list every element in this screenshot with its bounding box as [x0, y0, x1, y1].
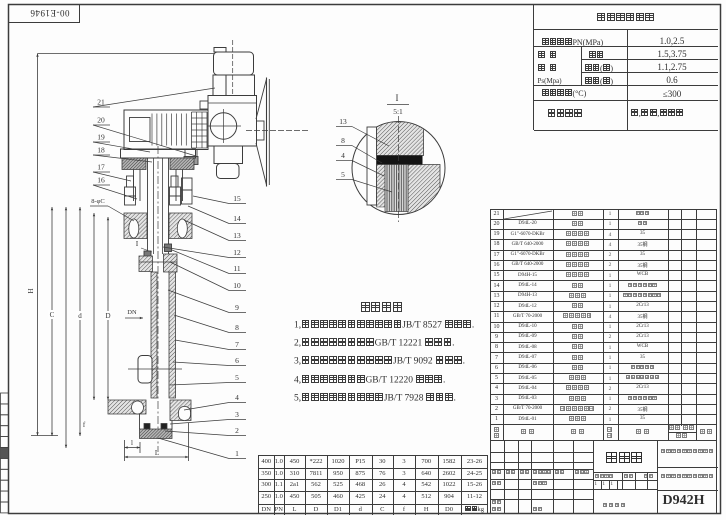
svg-text:18: 18 — [97, 146, 105, 155]
svg-text:10: 10 — [233, 281, 241, 290]
svg-text:5: 5 — [235, 373, 239, 382]
svg-text:8-φC: 8-φC — [91, 198, 105, 205]
svg-text:8: 8 — [235, 323, 239, 332]
svg-text:14: 14 — [233, 214, 241, 223]
svg-text:f: f — [83, 421, 86, 429]
svg-text:1: 1 — [235, 449, 239, 458]
svg-text:19: 19 — [97, 133, 105, 142]
svg-text:4: 4 — [235, 393, 239, 402]
svg-text:l: l — [131, 439, 133, 447]
svg-text:C: C — [50, 311, 55, 319]
svg-text:D: D — [105, 312, 110, 320]
svg-text:5:1: 5:1 — [393, 107, 403, 116]
svg-text:15: 15 — [233, 194, 241, 203]
svg-text:I: I — [136, 239, 139, 248]
svg-text:3: 3 — [235, 410, 239, 419]
svg-text:7: 7 — [235, 340, 239, 349]
svg-text:12: 12 — [233, 248, 241, 257]
svg-text:I: I — [396, 93, 399, 103]
svg-text:17: 17 — [97, 163, 105, 172]
svg-text:6: 6 — [235, 356, 239, 365]
svg-text:13: 13 — [233, 231, 241, 240]
svg-text:11: 11 — [233, 264, 240, 273]
svg-text:20: 20 — [97, 116, 105, 125]
svg-text:2: 2 — [235, 426, 239, 435]
svg-text:L: L — [155, 449, 159, 457]
svg-text:13: 13 — [339, 117, 347, 126]
svg-text:d: d — [78, 312, 82, 320]
svg-text:H: H — [27, 288, 35, 293]
svg-text:9: 9 — [235, 303, 239, 312]
svg-text:8: 8 — [341, 136, 345, 145]
svg-text:16: 16 — [97, 176, 105, 185]
svg-text:5: 5 — [341, 170, 345, 179]
svg-text:4: 4 — [341, 151, 345, 160]
svg-text:DN: DN — [127, 309, 137, 316]
